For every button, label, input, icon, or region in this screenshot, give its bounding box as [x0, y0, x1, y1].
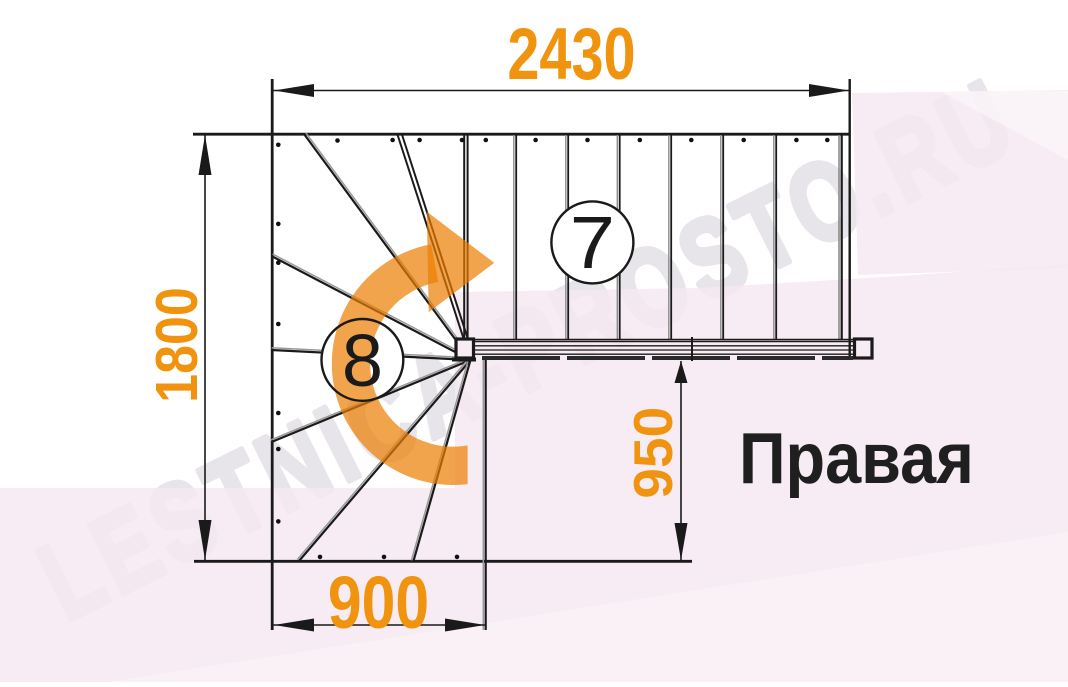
- svg-text:Правая: Правая: [739, 418, 974, 499]
- svg-text:7: 7: [570, 202, 615, 284]
- svg-text:2430: 2430: [507, 12, 635, 94]
- svg-text:900: 900: [328, 562, 429, 644]
- svg-text:1800: 1800: [144, 287, 210, 402]
- svg-text:950: 950: [622, 407, 684, 499]
- svg-text:8: 8: [342, 319, 383, 402]
